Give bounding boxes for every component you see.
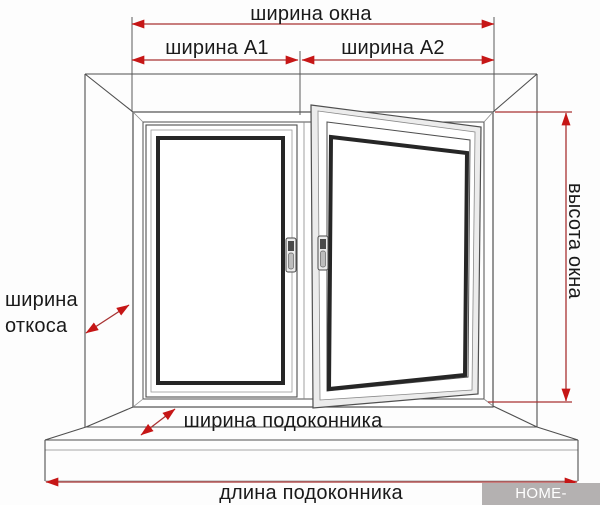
right-sash-open <box>311 105 481 408</box>
dim-width-a1 <box>132 51 300 115</box>
dim-window-height <box>488 112 572 402</box>
left-sash-handle <box>286 238 296 272</box>
label-slope-width: ширина откоса <box>5 287 95 339</box>
left-sash <box>146 125 297 397</box>
label-sill-width: ширина подоконника <box>163 410 403 432</box>
label-sill-length: длина подоконника <box>191 482 431 504</box>
site-watermark: HOME-IDEAS.RU <box>482 483 600 505</box>
label-window-height: высота окна <box>564 183 586 323</box>
label-width-a2: ширина А2 <box>293 37 493 59</box>
label-window-width: ширина окна <box>191 3 431 25</box>
label-width-a1: ширина А1 <box>117 37 317 59</box>
dim-window-width <box>132 17 494 112</box>
window-measurement-diagram: ширина окна ширина А1 ширина А2 высота о… <box>0 0 600 505</box>
left-sash-glass <box>158 138 283 383</box>
right-sash-handle <box>318 236 328 270</box>
windowsill <box>45 427 578 481</box>
right-sash-glass <box>329 137 467 389</box>
